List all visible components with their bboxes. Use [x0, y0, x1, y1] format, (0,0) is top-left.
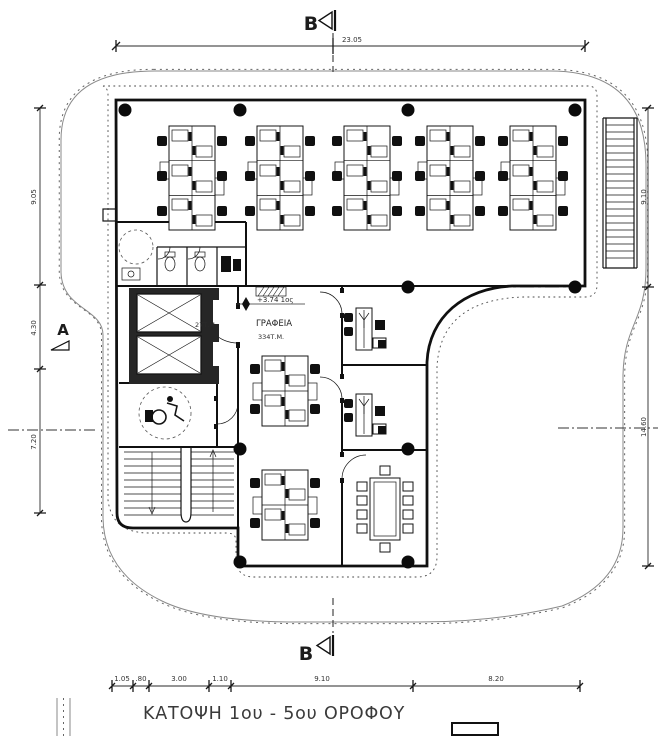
structural-column [569, 104, 582, 117]
level-label: +3.74 1ος [257, 296, 294, 304]
dim-bottom-1: 1.05 [114, 675, 130, 683]
section-arrow-top-icon [319, 12, 332, 29]
drawing-title: ΚΑΤΟΨΗ 1ου - 5ου ΟΡΟΦΟΥ [143, 704, 405, 724]
facade-nib [103, 209, 116, 221]
section-marker-B-top: B [304, 10, 335, 35]
dim-bottom-3: 3.00 [171, 675, 187, 683]
structural-column [402, 556, 415, 569]
section-letter-top: B [304, 13, 318, 35]
section-arrow-bottom-icon [317, 637, 330, 654]
dim-left-2: 4.30 [30, 320, 38, 336]
section-letter-bottom: B [299, 643, 313, 665]
section-marker-B-bottom: B [299, 635, 333, 665]
elevator-shaft [137, 336, 201, 374]
escape-ladder [603, 118, 637, 268]
section-letter-left: A [57, 321, 69, 339]
section-arrow-left-icon [51, 341, 69, 350]
dim-bottom-2: .80 [135, 675, 146, 683]
structural-column [402, 104, 415, 117]
floor-plan-page: B B A +3.74 1ος ΓΡΑΦΕΙΑ 334Τ.Μ. 27Τ.Μ. 2… [0, 0, 659, 736]
dim-bottom-4: 1.10 [212, 675, 228, 683]
room-area-label: 334Τ.Μ. [258, 333, 284, 341]
elevator-shaft [137, 294, 201, 332]
structural-column [402, 443, 415, 456]
dim-left-3: 7.20 [30, 434, 38, 450]
dim-left-1: 9.05 [30, 189, 38, 205]
title-block-corner [452, 723, 498, 735]
structural-column [569, 281, 582, 294]
dim-bottom-6: 8.20 [488, 675, 504, 683]
dim-right-1: 9.10 [640, 189, 648, 205]
core-area-label: 27Τ.Μ. [195, 321, 217, 329]
dim-bottom-5: 9.10 [314, 675, 330, 683]
structural-column [402, 281, 415, 294]
section-marker-A: A [51, 321, 69, 350]
structural-column [234, 443, 247, 456]
dim-top: 23.05 [342, 36, 362, 44]
structural-column [234, 556, 247, 569]
structural-column [234, 104, 247, 117]
floor-plan-drawing: B B A +3.74 1ος ΓΡΑΦΕΙΑ 334Τ.Μ. 27Τ.Μ. 2… [0, 0, 659, 736]
structural-column [119, 104, 132, 117]
dim-right-2: 14.60 [640, 417, 648, 437]
room-name-label: ΓΡΑΦΕΙΑ [256, 319, 292, 329]
